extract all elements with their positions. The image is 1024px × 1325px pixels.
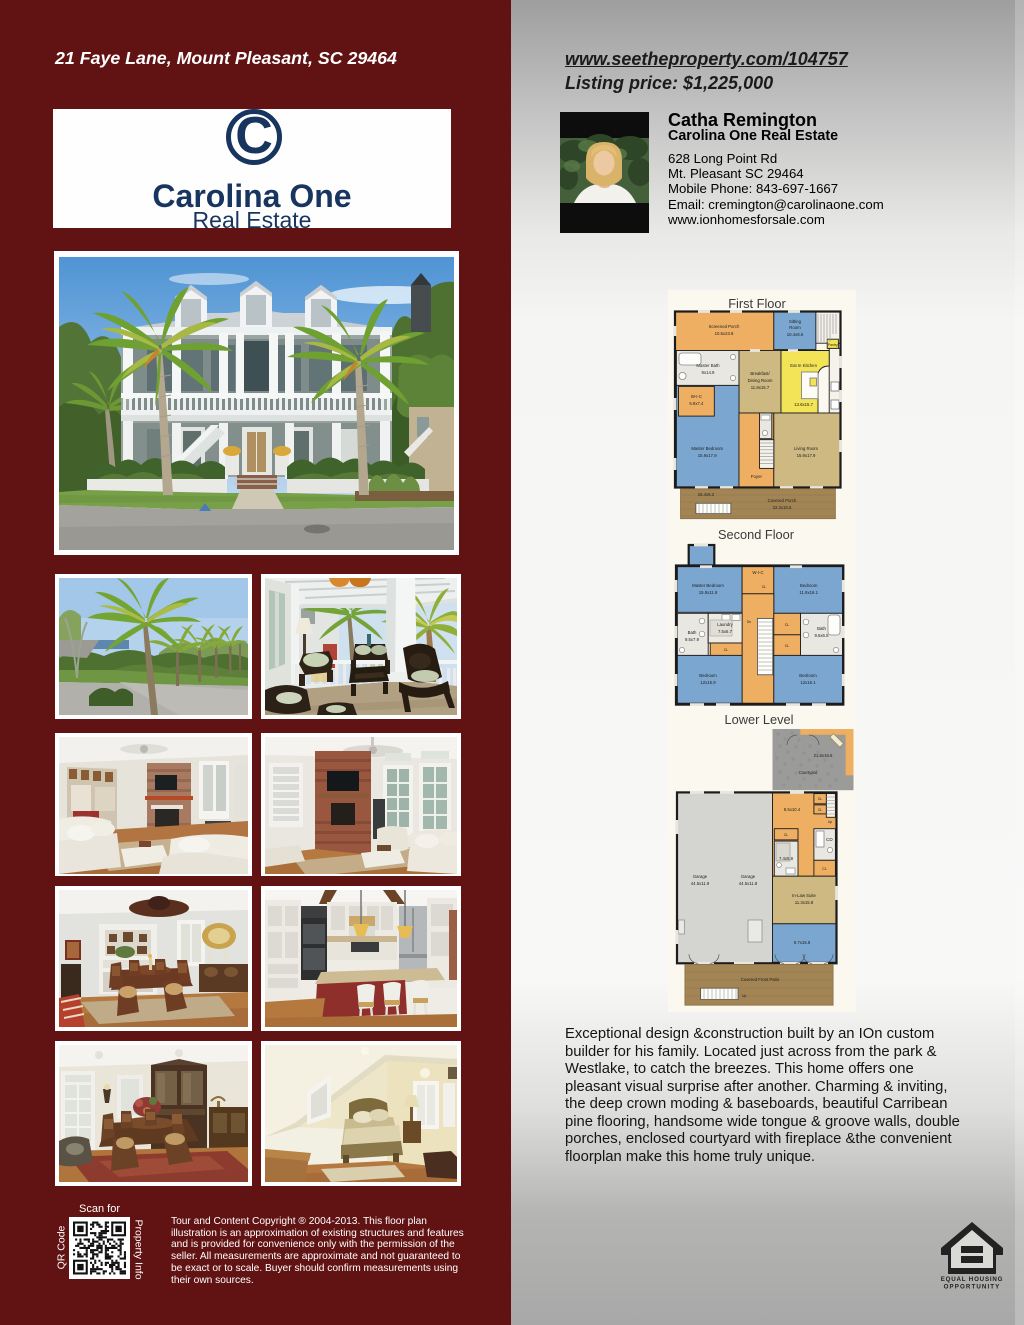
svg-text:Up: Up — [828, 820, 832, 824]
svg-text:10.5x23.8: 10.5x23.8 — [715, 331, 734, 336]
svg-text:Dining Room: Dining Room — [748, 378, 773, 383]
svg-text:44.5x11.9: 44.5x11.9 — [691, 881, 710, 886]
svg-text:Bedroom: Bedroom — [799, 673, 817, 678]
svg-text:12x16.1: 12x16.1 — [800, 680, 816, 685]
svg-text:11.8x15.7: 11.8x15.7 — [751, 385, 770, 390]
svg-text:CL: CL — [762, 585, 767, 589]
svg-text:Covered Front Patio: Covered Front Patio — [741, 977, 780, 982]
svg-text:Garage: Garage — [741, 874, 756, 879]
svg-text:15.9x17.9: 15.9x17.9 — [698, 453, 717, 458]
svg-text:Master Bedroom: Master Bedroom — [691, 446, 723, 451]
svg-text:11.3x15.8: 11.3x15.8 — [795, 900, 814, 905]
svg-text:Second Floor: Second Floor — [718, 527, 795, 542]
svg-text:CL: CL — [724, 648, 729, 652]
svg-text:7.4x5.8: 7.4x5.8 — [779, 856, 794, 861]
svg-text:Sitting: Sitting — [789, 319, 802, 324]
svg-text:15.9x17.9: 15.9x17.9 — [797, 453, 816, 458]
svg-text:10.4x8.6: 10.4x8.6 — [787, 332, 804, 337]
svg-text:Covered Porch: Covered Porch — [768, 498, 797, 503]
svg-text:OPPORTUNITY: OPPORTUNITY — [944, 1284, 1001, 1291]
svg-text:9x14.9: 9x14.9 — [702, 370, 716, 375]
svg-text:Up: Up — [742, 994, 746, 998]
svg-text:8.5x10.4: 8.5x10.4 — [784, 807, 801, 812]
svg-text:Lower Level: Lower Level — [724, 712, 793, 727]
svg-text:44.5x11.8: 44.5x11.8 — [739, 881, 758, 886]
svg-text:9.5x7.9: 9.5x7.9 — [685, 637, 700, 642]
svg-text:Laundry: Laundry — [717, 622, 733, 627]
svg-text:Bath: Bath — [817, 626, 826, 631]
svg-text:Breakfast/: Breakfast/ — [750, 371, 770, 376]
svg-text:CL: CL — [784, 833, 789, 837]
svg-text:CL: CL — [818, 797, 823, 801]
svg-text:W-I-C: W-I-C — [691, 394, 702, 399]
svg-text:First Floor: First Floor — [728, 296, 786, 311]
svg-text:Master Bedroom: Master Bedroom — [692, 583, 724, 588]
svg-text:Bedroom: Bedroom — [699, 673, 717, 678]
svg-text:CL: CL — [785, 623, 790, 627]
svg-text:Screened Porch: Screened Porch — [709, 324, 740, 329]
svg-text:Dn: Dn — [747, 620, 751, 624]
svg-text:In-Law Suite: In-Law Suite — [792, 893, 816, 898]
svg-text:W-I-C: W-I-C — [752, 570, 763, 575]
svg-text:Bedroom: Bedroom — [800, 583, 818, 588]
svg-text:6.9x7.4: 6.9x7.4 — [689, 401, 704, 406]
svg-text:CL: CL — [785, 644, 790, 648]
svg-text:Eat In Kitchen: Eat In Kitchen — [790, 363, 817, 368]
svg-text:Living Room: Living Room — [794, 446, 818, 451]
svg-text:22.3x10.5: 22.3x10.5 — [773, 505, 792, 510]
svg-text:13.6x15.7: 13.6x15.7 — [794, 402, 813, 407]
svg-text:CL: CL — [822, 867, 827, 871]
svg-text:9.7x15.8: 9.7x15.8 — [794, 940, 811, 945]
svg-text:15.4x5.2: 15.4x5.2 — [698, 492, 715, 497]
svg-text:15.9x11.9: 15.9x11.9 — [699, 590, 718, 595]
svg-text:11.9x16.1: 11.9x16.1 — [799, 590, 818, 595]
svg-text:Courtyard: Courtyard — [799, 770, 818, 775]
svg-text:21.6x16.6: 21.6x16.6 — [814, 753, 833, 758]
svg-text:Room: Room — [789, 325, 801, 330]
svg-text:Garage: Garage — [693, 874, 708, 879]
svg-text:CD: CD — [826, 837, 833, 842]
svg-text:CL: CL — [818, 808, 823, 812]
svg-text:Master Bath: Master Bath — [696, 363, 720, 368]
svg-text:Pantry: Pantry — [828, 343, 838, 347]
svg-text:Bath: Bath — [688, 630, 697, 635]
svg-text:EQUAL HOUSING: EQUAL HOUSING — [941, 1276, 1003, 1283]
svg-text:Foyer: Foyer — [751, 474, 763, 479]
svg-text:9.5x6.5: 9.5x6.5 — [814, 633, 829, 638]
svg-text:7.5x6.7: 7.5x6.7 — [718, 629, 733, 634]
svg-text:12x15.9: 12x15.9 — [700, 680, 716, 685]
